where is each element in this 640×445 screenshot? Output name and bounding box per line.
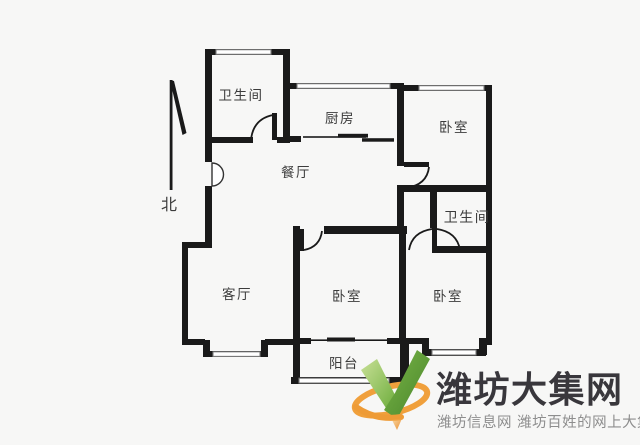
room-label-living-room: 客厅 <box>222 286 252 303</box>
window-living-bay <box>213 352 260 357</box>
window-kitchen <box>297 84 390 89</box>
room-label-bedroom-south-east: 卧室 <box>433 288 463 305</box>
door-arc-corridor-left <box>409 229 432 250</box>
room-label-dining-room: 餐厅 <box>281 165 311 181</box>
north-arrow-icon <box>170 80 187 190</box>
watermark-logo <box>352 350 430 430</box>
door-arc-bathroom-top <box>251 115 273 140</box>
compass-label: 北 <box>161 195 177 214</box>
watermark-tagline: 潍坊信息网 潍坊百姓的网上大集 <box>437 414 640 431</box>
floor-plan-canvas: 北 卫生间 厨房 卧室 餐厅 卫生间 客厅 卧室 卧室 阳台 潍坊大集网 潍坊信… <box>0 0 640 445</box>
room-label-bathroom-top: 卫生间 <box>219 88 264 104</box>
room-label-kitchen: 厨房 <box>325 111 355 127</box>
room-label-bedroom-north: 卧室 <box>439 119 469 136</box>
door-arc-bedroom-mid <box>304 231 322 250</box>
floor-plan-image: 北 卫生间 厨房 卧室 餐厅 卫生间 客厅 卧室 卧室 阳台 潍坊大集网 潍坊信… <box>0 0 640 445</box>
logo-orange-tail <box>392 419 402 431</box>
room-label-bathroom-east: 卫生间 <box>444 210 491 226</box>
entry-door-icon <box>212 163 224 186</box>
window-bedroom-north <box>419 86 484 91</box>
room-label-balcony: 阳台 <box>329 356 359 372</box>
window-bedroom-se-bay <box>432 350 476 355</box>
room-label-bedroom-south-mid: 卧室 <box>332 288 362 305</box>
window-bathroom-top <box>216 50 271 55</box>
door-arc-bedroom-north <box>406 167 429 188</box>
watermark-site-name: 潍坊大集网 <box>436 370 624 411</box>
